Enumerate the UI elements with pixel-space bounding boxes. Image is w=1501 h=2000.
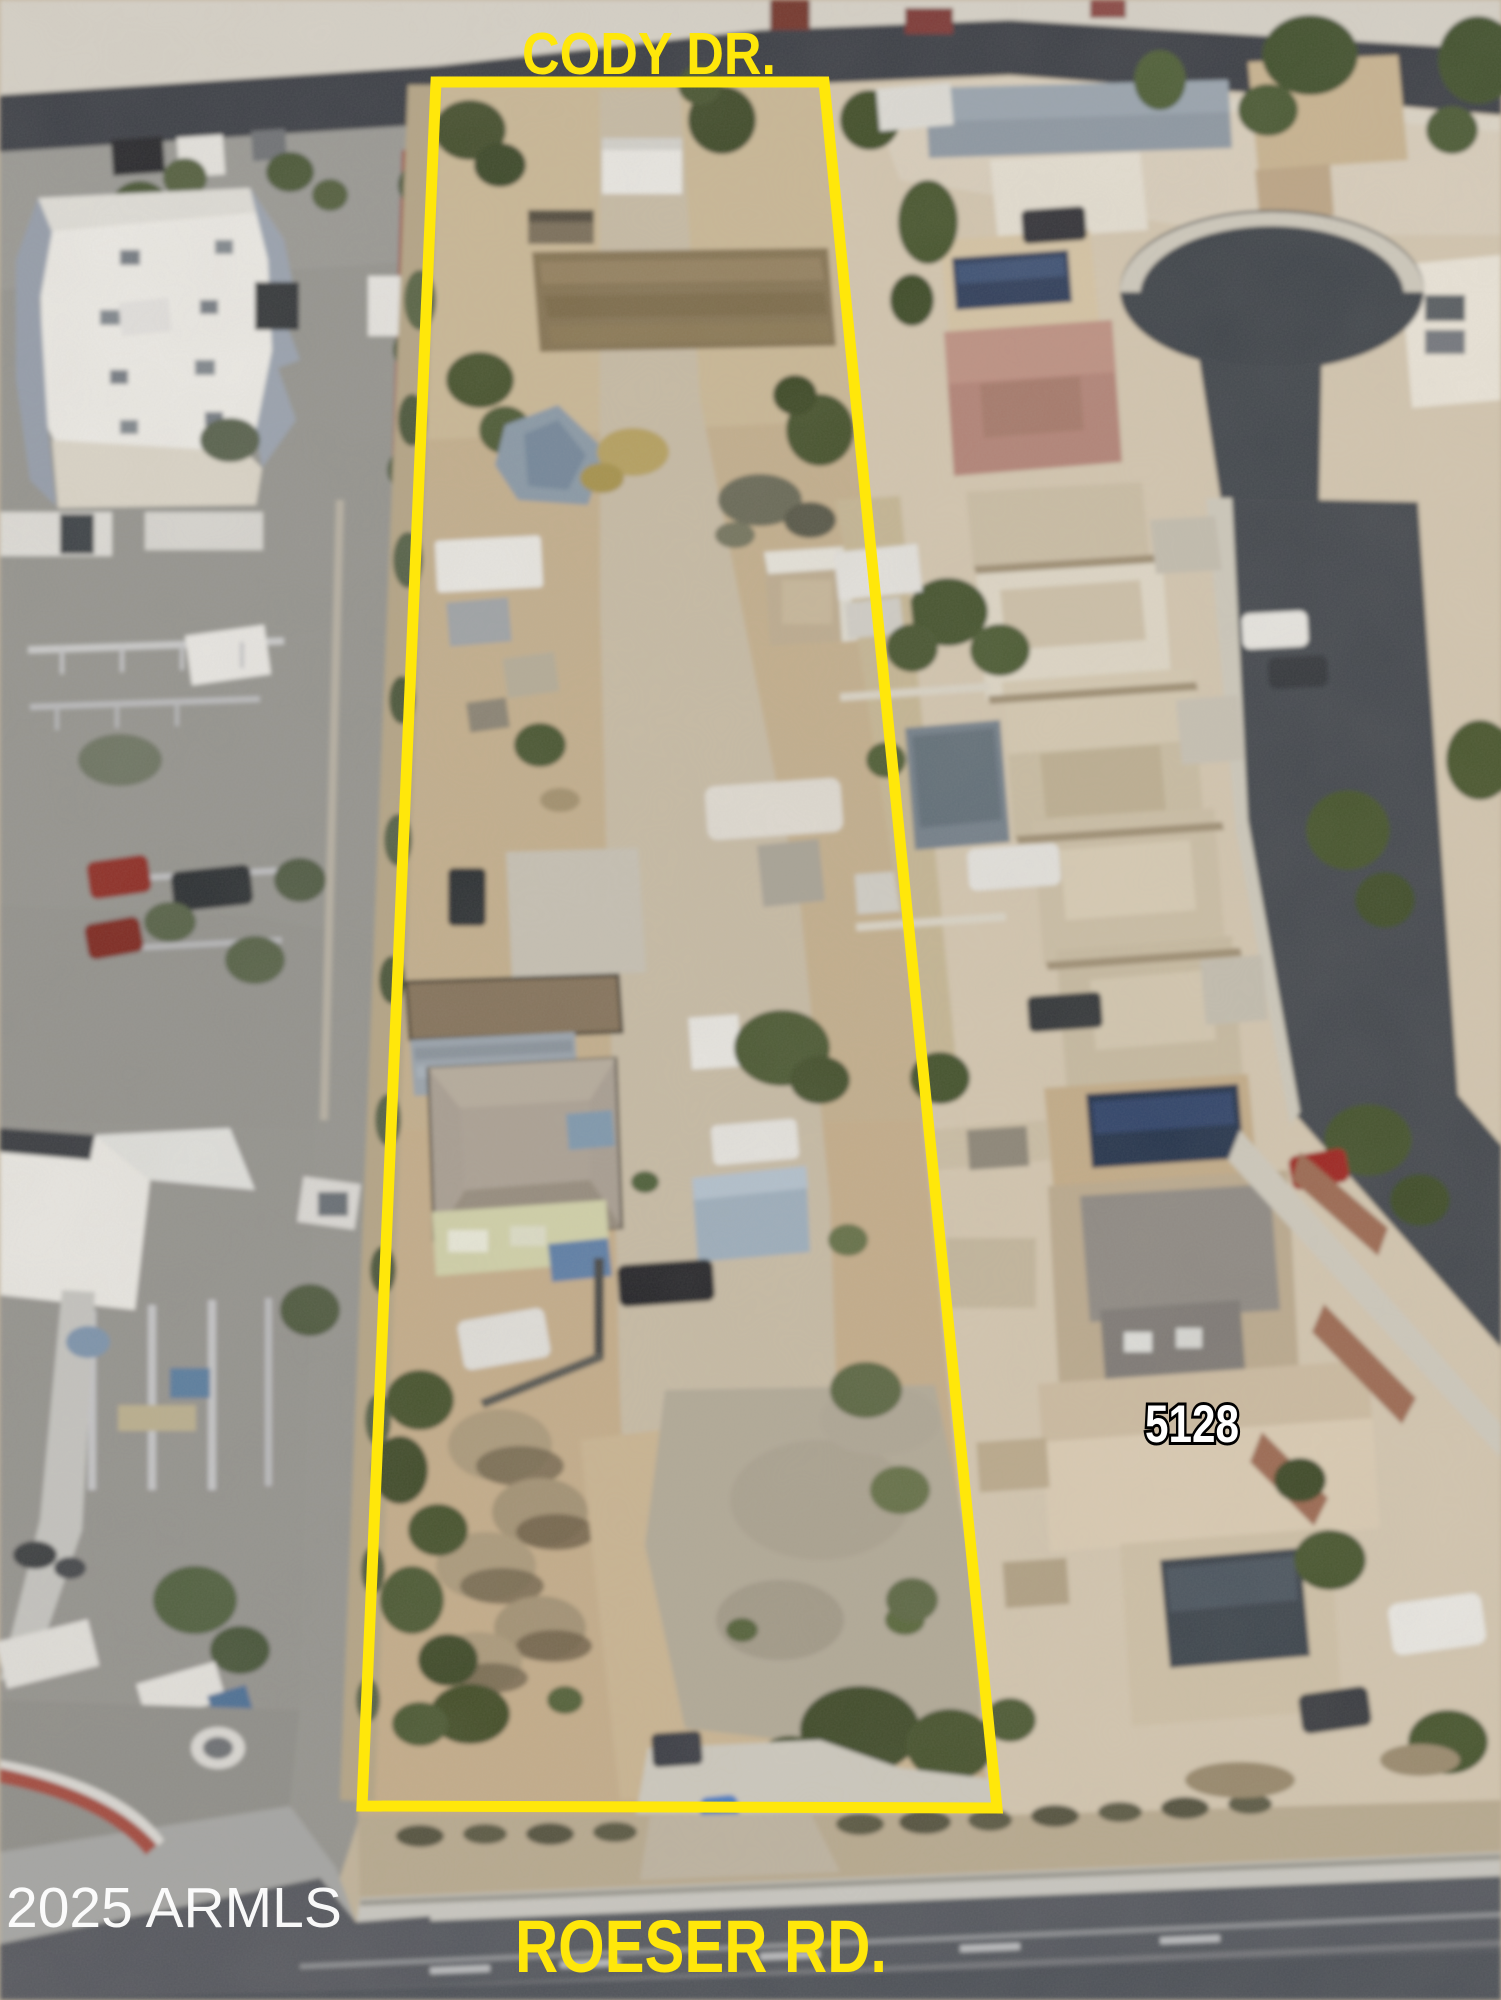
- svg-text:ROESER RD.: ROESER RD.: [515, 1905, 887, 1988]
- svg-text:5128: 5128: [1145, 1395, 1239, 1454]
- svg-text:2025 ARMLS: 2025 ARMLS: [6, 1876, 342, 1940]
- svg-text:CODY DR.: CODY DR.: [522, 21, 776, 87]
